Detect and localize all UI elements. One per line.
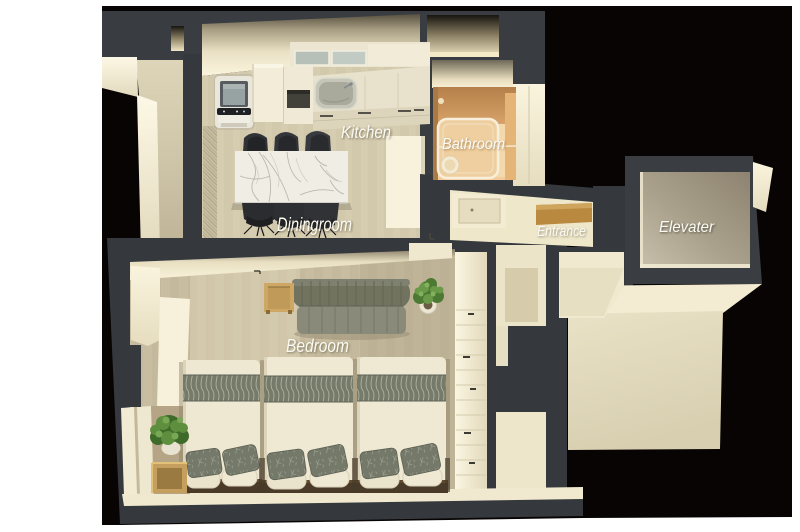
svg-text:Kitchen: Kitchen <box>341 122 391 142</box>
svg-text:Bedroom: Bedroom <box>286 336 349 356</box>
svg-text:Diningroom: Diningroom <box>277 215 352 236</box>
svg-text:Entrance: Entrance <box>537 223 586 240</box>
svg-text:Bathroom: Bathroom <box>442 136 505 153</box>
svg-text:Elevater: Elevater <box>659 219 715 236</box>
